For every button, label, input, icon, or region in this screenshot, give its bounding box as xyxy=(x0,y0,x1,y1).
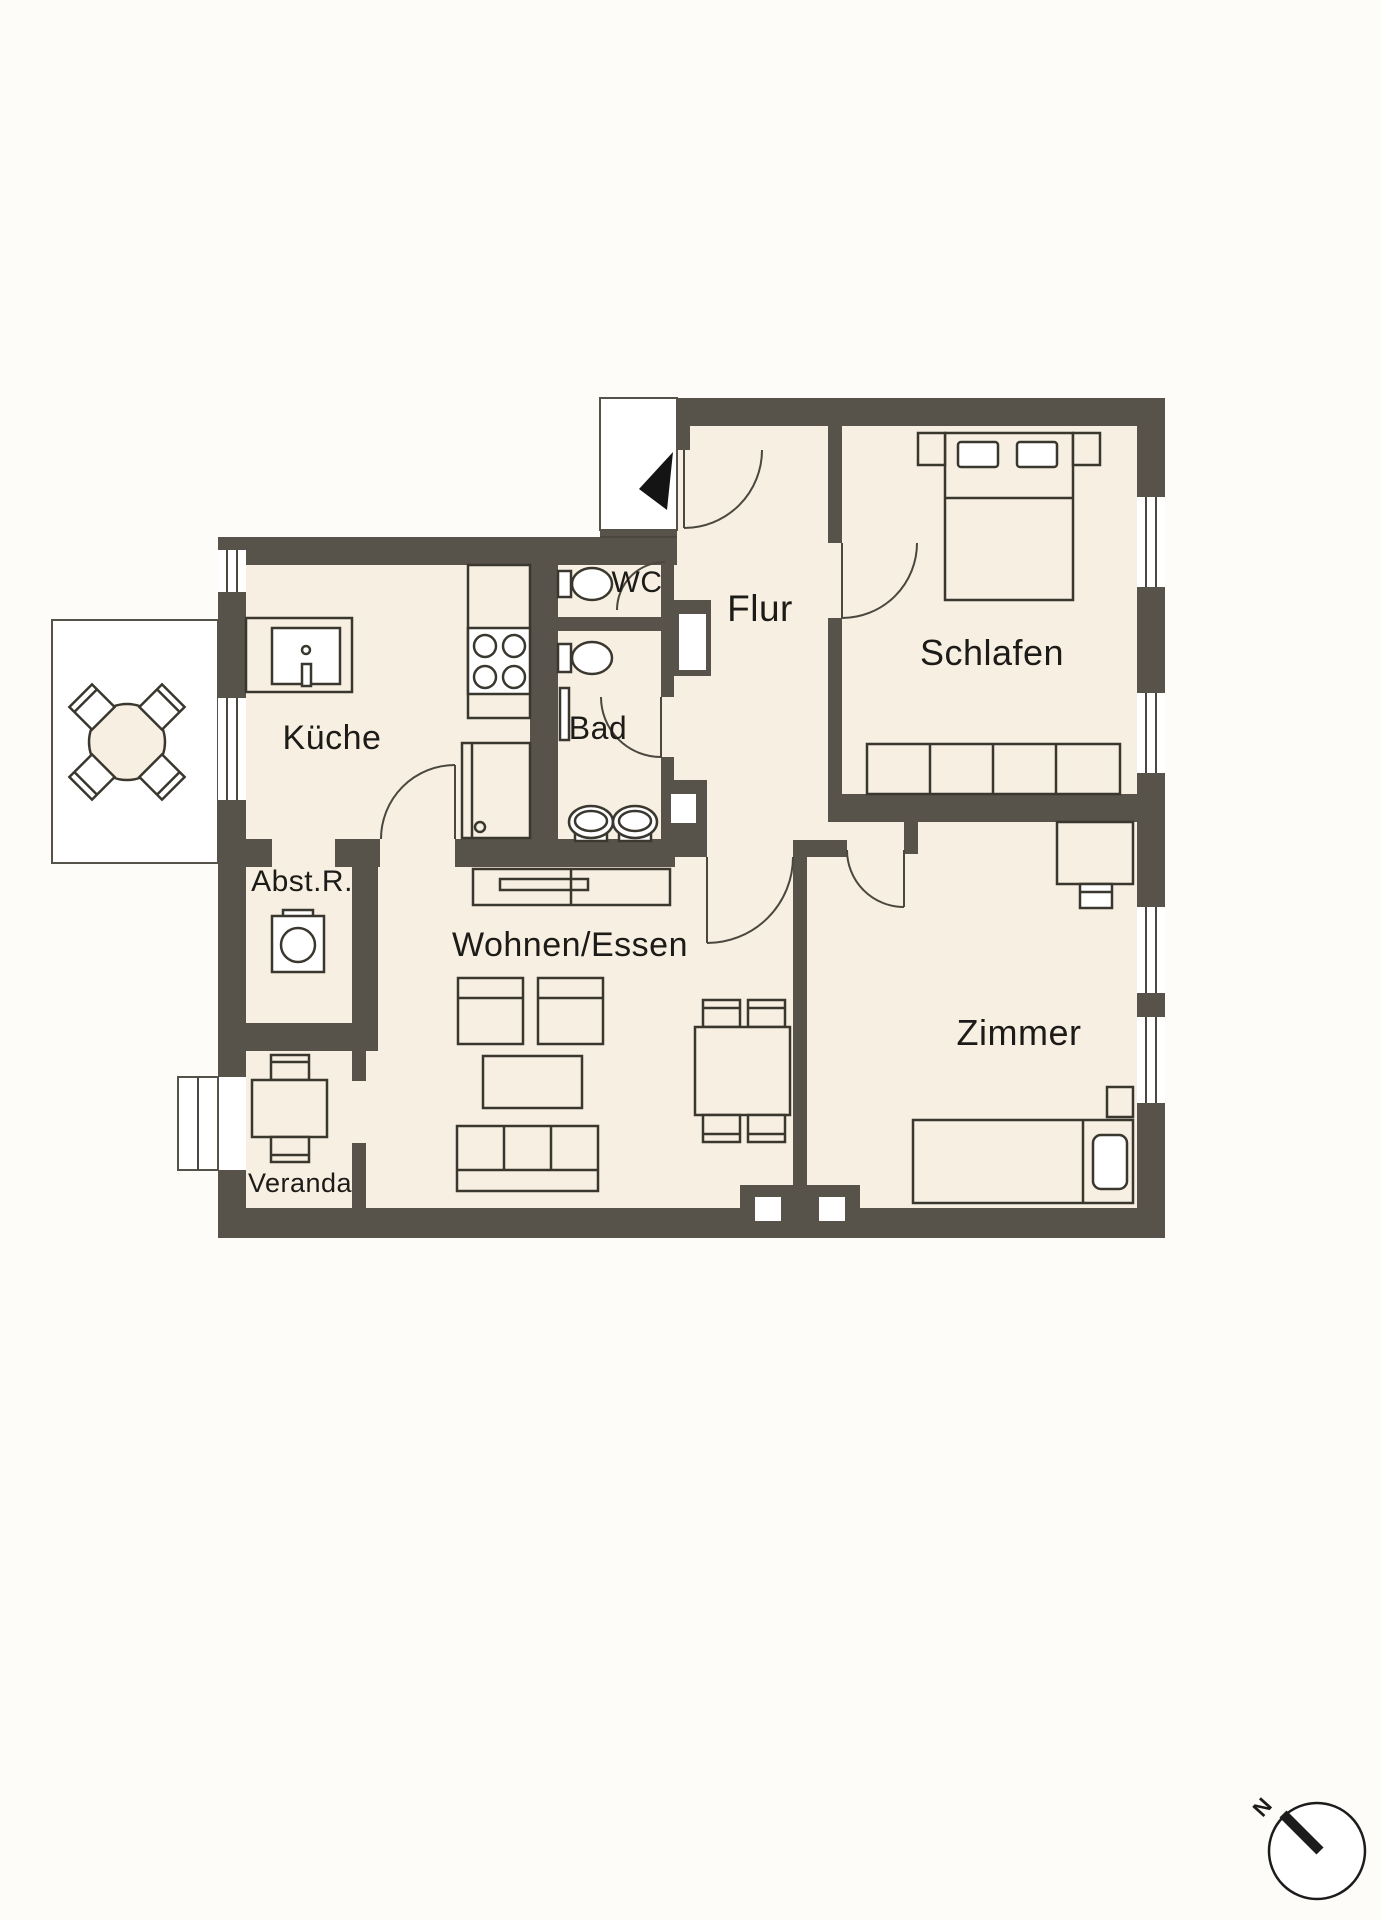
wall-kueche-abst-right xyxy=(335,839,380,867)
room-label-wc: WC xyxy=(612,566,663,599)
wall-veranda-wohnen-lower xyxy=(352,1143,366,1208)
armchair xyxy=(458,978,523,1044)
veranda-chair xyxy=(271,1137,309,1162)
armchair xyxy=(538,978,603,1044)
wall-flur-schlafen-lower xyxy=(828,618,842,822)
kitchen-sink-counter xyxy=(246,618,352,692)
room-label-wohnen-essen: Wohnen/Essen xyxy=(452,926,688,964)
window-veranda xyxy=(178,1077,246,1170)
wall-veranda-wohnen-upper xyxy=(352,1051,366,1081)
kitchen-tall-cabinet xyxy=(462,743,530,838)
wall-kueche-bad xyxy=(530,565,558,839)
wall-schlafen-zimmer xyxy=(842,794,1137,822)
kitchen-stove-counter xyxy=(468,565,530,718)
niche-flur xyxy=(679,614,706,670)
wall-bad-flur-upper xyxy=(661,565,674,697)
veranda-table xyxy=(252,1080,327,1137)
room-label-bad: Bad xyxy=(569,710,627,746)
room-label-flur: Flur xyxy=(727,588,793,629)
wall-bad-wohnen xyxy=(455,839,675,867)
bad-toilet xyxy=(558,642,612,674)
sideboard xyxy=(473,869,670,905)
wall-zimmer-door-jamb xyxy=(904,822,918,854)
window-schlafen-1 xyxy=(1137,497,1165,587)
nightstand xyxy=(918,433,945,465)
room-label-schlafen: Schlafen xyxy=(920,632,1064,673)
room-label-zimmer: Zimmer xyxy=(957,1012,1082,1053)
wardrobe xyxy=(867,744,1120,794)
floor-plan-canvas: Küche WC Flur Schlafen Bad Abst.R. Wohne… xyxy=(0,0,1382,1920)
dining-chair xyxy=(748,1115,785,1142)
floor-plan-page: Küche WC Flur Schlafen Bad Abst.R. Wohne… xyxy=(0,0,1382,1920)
terrace xyxy=(52,620,218,863)
wall-flur-schlafen-upper xyxy=(828,426,842,543)
wall-kueche-abst-left xyxy=(246,839,272,867)
nightstand xyxy=(1073,433,1100,465)
room-label-veranda: Veranda xyxy=(248,1168,353,1198)
room-label-kueche: Küche xyxy=(283,719,382,757)
niche-wohnen xyxy=(671,794,696,823)
dining-chair xyxy=(703,1115,740,1142)
dining-chair xyxy=(703,1000,740,1027)
window-zimmer-1 xyxy=(1137,907,1165,993)
wall-abst-wohnen xyxy=(352,867,378,1023)
dining-chair xyxy=(748,1000,785,1027)
wall-vestibule-threshold xyxy=(600,530,677,565)
window-schlafen-2 xyxy=(1137,693,1165,773)
bad-radiator xyxy=(560,688,569,740)
window-kueche-1 xyxy=(218,550,246,592)
coffee-table xyxy=(483,1056,582,1108)
wall-abst-veranda xyxy=(246,1023,378,1051)
nightstand xyxy=(1107,1087,1133,1117)
chimney-vent xyxy=(755,1197,781,1221)
veranda-chair xyxy=(271,1055,309,1080)
chimney-vent xyxy=(819,1197,845,1221)
wall-entry-jamb xyxy=(677,426,690,450)
double-bed xyxy=(918,433,1100,600)
dining-table xyxy=(695,1027,790,1115)
window-zimmer-2 xyxy=(1137,1017,1165,1103)
wall-wohnen-zimmer xyxy=(793,857,807,1188)
washing-machine xyxy=(272,910,324,972)
sofa xyxy=(457,1126,598,1191)
wall-wc-bad xyxy=(530,617,674,631)
entrance-vestibule xyxy=(600,398,677,537)
window-kueche-2 xyxy=(218,698,246,800)
wc-toilet xyxy=(558,568,612,600)
room-label-abstellraum: Abst.R. xyxy=(251,865,353,898)
wall-flur-zimmer-jamb xyxy=(793,840,847,857)
